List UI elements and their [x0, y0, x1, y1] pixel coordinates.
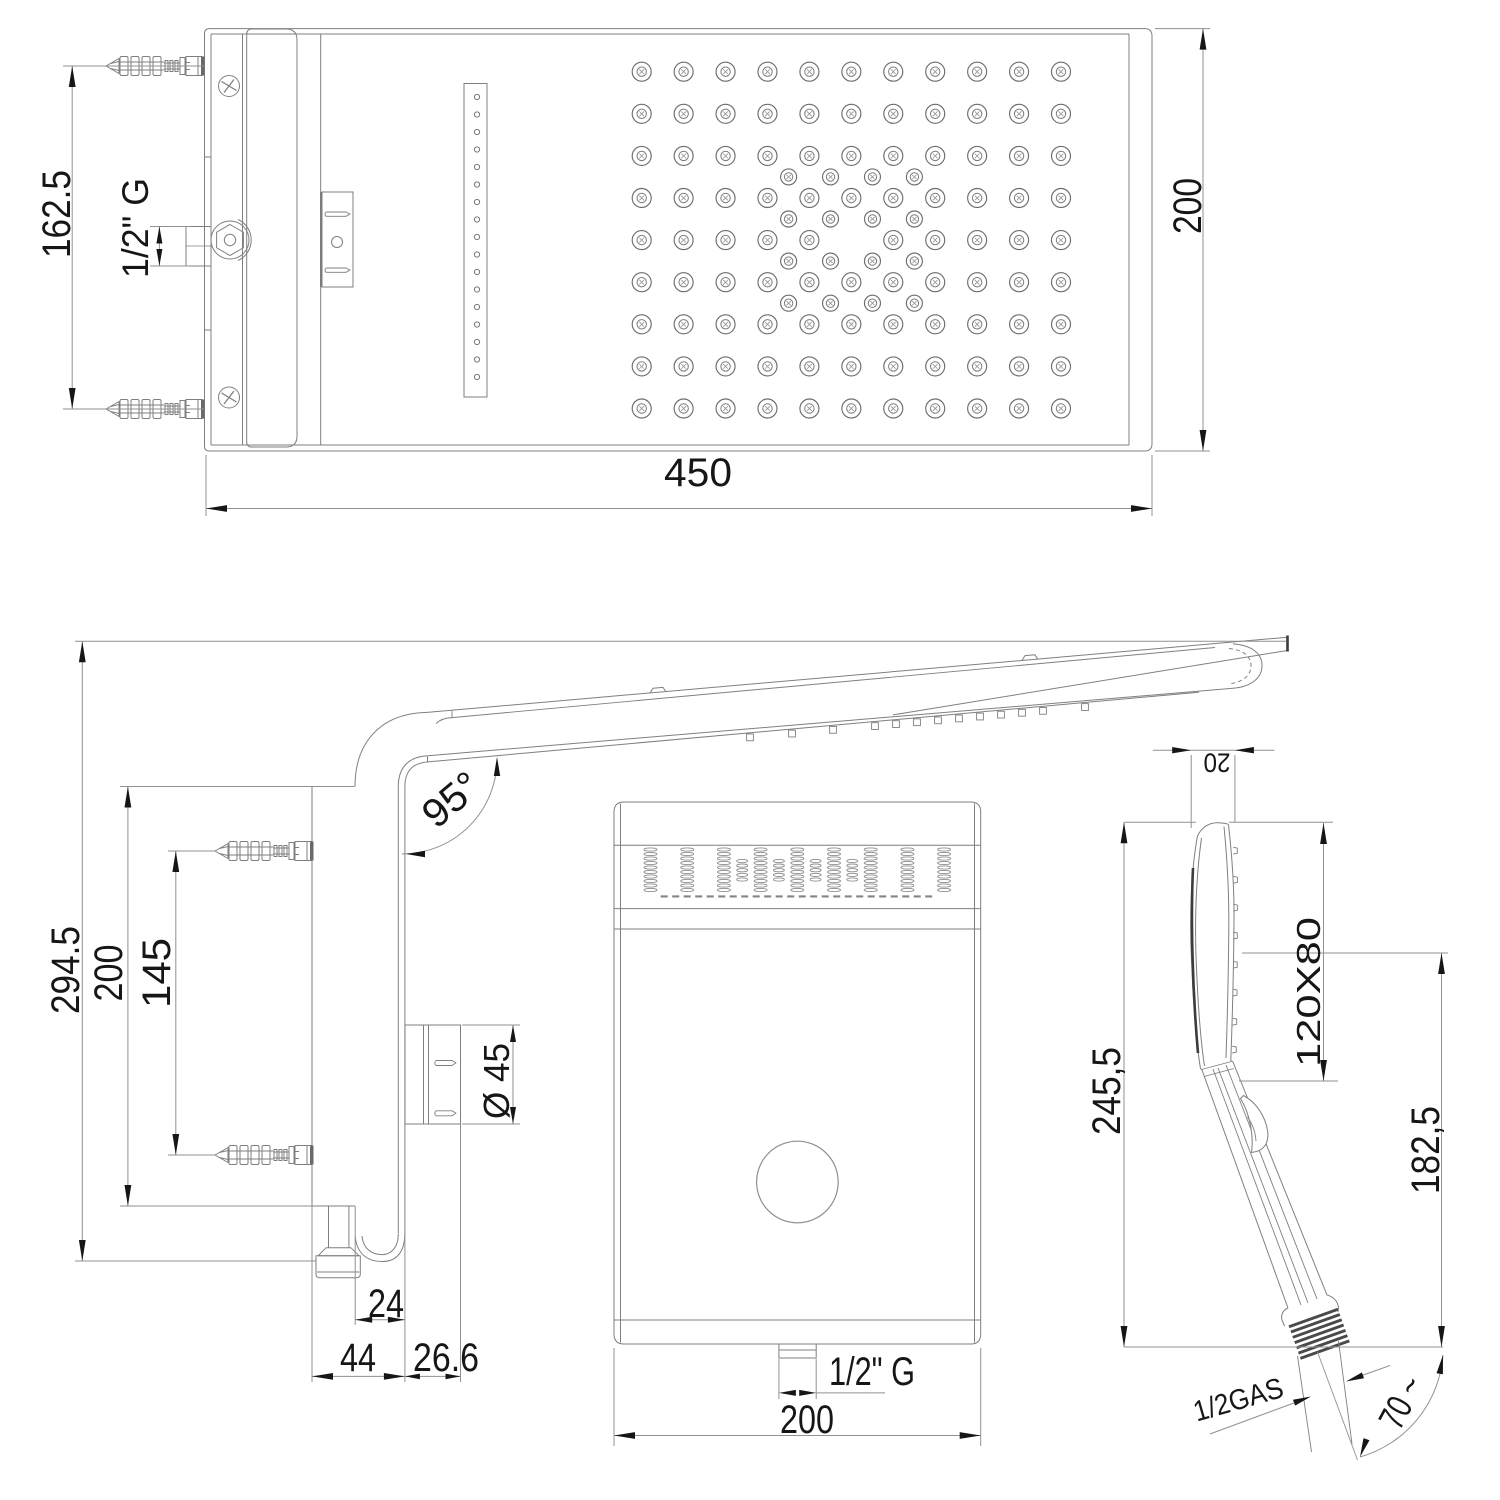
svg-text:245,5: 245,5 — [1085, 1047, 1129, 1135]
svg-text:200: 200 — [1166, 178, 1210, 234]
svg-text:182,5: 182,5 — [1404, 1106, 1448, 1194]
svg-text:145: 145 — [135, 938, 179, 1008]
svg-text:1/2" G: 1/2" G — [115, 178, 156, 278]
svg-text:24: 24 — [368, 1282, 404, 1326]
svg-text:44: 44 — [340, 1336, 376, 1380]
svg-text:120X80: 120X80 — [1290, 917, 1327, 1067]
svg-text:200: 200 — [87, 945, 131, 1002]
svg-text:20: 20 — [1204, 748, 1231, 778]
svg-text:200: 200 — [780, 1398, 834, 1442]
svg-text:450: 450 — [664, 451, 732, 495]
svg-text:26.6: 26.6 — [413, 1336, 479, 1380]
svg-text:Ø 45: Ø 45 — [476, 1043, 517, 1119]
svg-text:294.5: 294.5 — [44, 926, 88, 1014]
svg-text:162.5: 162.5 — [35, 170, 79, 258]
svg-text:1/2" G: 1/2" G — [829, 1350, 915, 1394]
